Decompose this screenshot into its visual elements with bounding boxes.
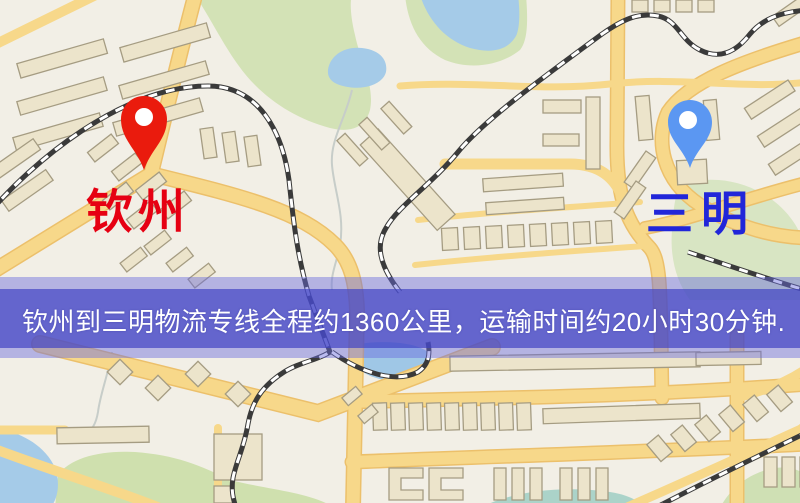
destination-city-label: 三明 — [646, 175, 756, 244]
origin-pin-hole — [135, 108, 153, 126]
route-info-text: 钦州到三明物流专线全程约1360公里，运输时间约20小时30分钟. — [22, 307, 792, 337]
map-canvas — [0, 0, 800, 503]
origin-city-label: 钦州 — [86, 173, 190, 242]
destination-pin-hole — [679, 111, 697, 129]
destination-pin-icon — [668, 100, 712, 168]
map-view: 钦州 三明 钦州到三明物流专线全程约1360公里，运输时间约20小时30分钟. — [0, 0, 800, 503]
destination-pin-body — [668, 100, 712, 168]
